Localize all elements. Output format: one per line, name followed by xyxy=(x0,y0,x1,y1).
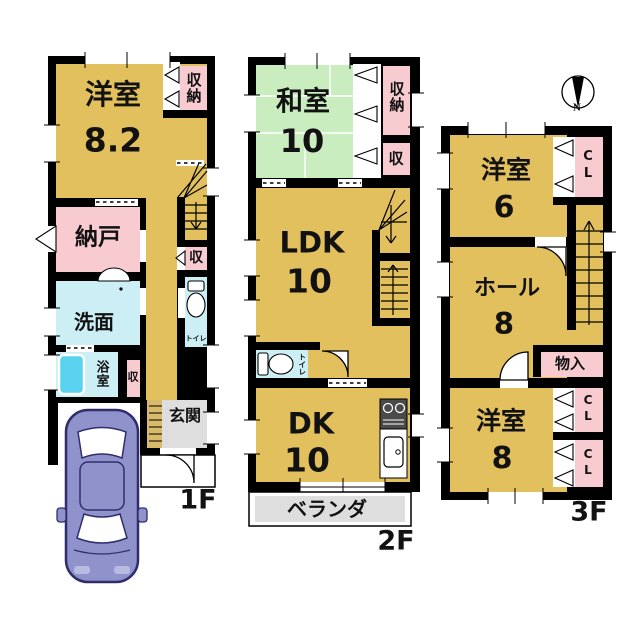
floor-label-2f: 2F xyxy=(377,528,414,555)
car xyxy=(57,410,147,582)
room-label-monoire: 物入 xyxy=(555,357,585,372)
1f-porch xyxy=(141,455,215,487)
room-size-hall: 8 xyxy=(494,310,514,339)
floor-label-1f: 1F xyxy=(179,487,216,514)
room-label-yoshitsu6: 洋室 xyxy=(481,158,531,183)
toilet-icon xyxy=(187,293,205,317)
1f-carport-wall xyxy=(48,403,58,465)
room-label-cl-bottom: CL xyxy=(582,447,594,479)
toilet-tank-icon xyxy=(258,353,268,375)
room-size-dk: 10 xyxy=(284,444,330,477)
room-size-yoshitsu8: 8 xyxy=(492,444,513,474)
room-label-hall: ホール xyxy=(474,278,540,300)
room-label-washitsu: 和室 xyxy=(276,89,330,116)
car-mirror xyxy=(57,508,66,522)
room-label-shu-bath: 収 xyxy=(128,372,139,383)
room-label-cl-top: CL xyxy=(582,149,595,183)
room-label-shuno-1f: 収納 xyxy=(186,72,201,104)
floorplan-page: 洋室 8.2 収納 納戸 洗面 浴室 収 収 トイレ 玄関 1F 和室 10 収… xyxy=(0,0,640,640)
room-size-ldk: 10 xyxy=(286,265,332,298)
room-label-senmen: 洗面 xyxy=(74,312,114,332)
kitchen-unit xyxy=(380,399,407,478)
room-label-genkan: 玄関 xyxy=(169,408,201,424)
room-label-cl-mid: CL xyxy=(582,393,594,425)
compass-north-label: N xyxy=(573,105,581,114)
room-size-yoshitsu82: 8.2 xyxy=(84,124,142,157)
1f-corridor xyxy=(146,198,177,400)
room-label-dk: DK xyxy=(288,410,335,439)
room-label-yokushitsu: 浴室 xyxy=(95,360,108,388)
3f-room-yoshitsu8 xyxy=(450,388,567,492)
nando-door-icon xyxy=(36,226,56,252)
room-label-toilet-1f: トイレ xyxy=(186,336,207,343)
room-label-ldk: LDK xyxy=(279,229,344,258)
room-size-washitsu: 10 xyxy=(280,125,325,157)
room-label-veranda: ベランダ xyxy=(287,499,367,519)
room-label-shuno-2f: 収納 xyxy=(389,81,404,113)
toilet-icon xyxy=(269,354,293,374)
car-mirror xyxy=(138,508,147,522)
room-label-toilet-2f: トイレ xyxy=(298,353,306,376)
floor-label-3f: 3F xyxy=(570,499,607,526)
floor-2f-plan xyxy=(244,53,424,526)
room-label-shu-2f: 収 xyxy=(388,152,403,167)
toilet-tank-icon xyxy=(188,281,204,291)
room-label-shu-hall: 収 xyxy=(189,251,203,265)
room-label-nando: 納戸 xyxy=(75,227,121,250)
room-size-yoshitsu6: 6 xyxy=(494,193,515,223)
room-label-yoshitsu8: 洋室 xyxy=(476,409,526,434)
bathtub-icon xyxy=(59,355,84,394)
room-label-yoshitsu82: 洋室 xyxy=(85,81,141,109)
